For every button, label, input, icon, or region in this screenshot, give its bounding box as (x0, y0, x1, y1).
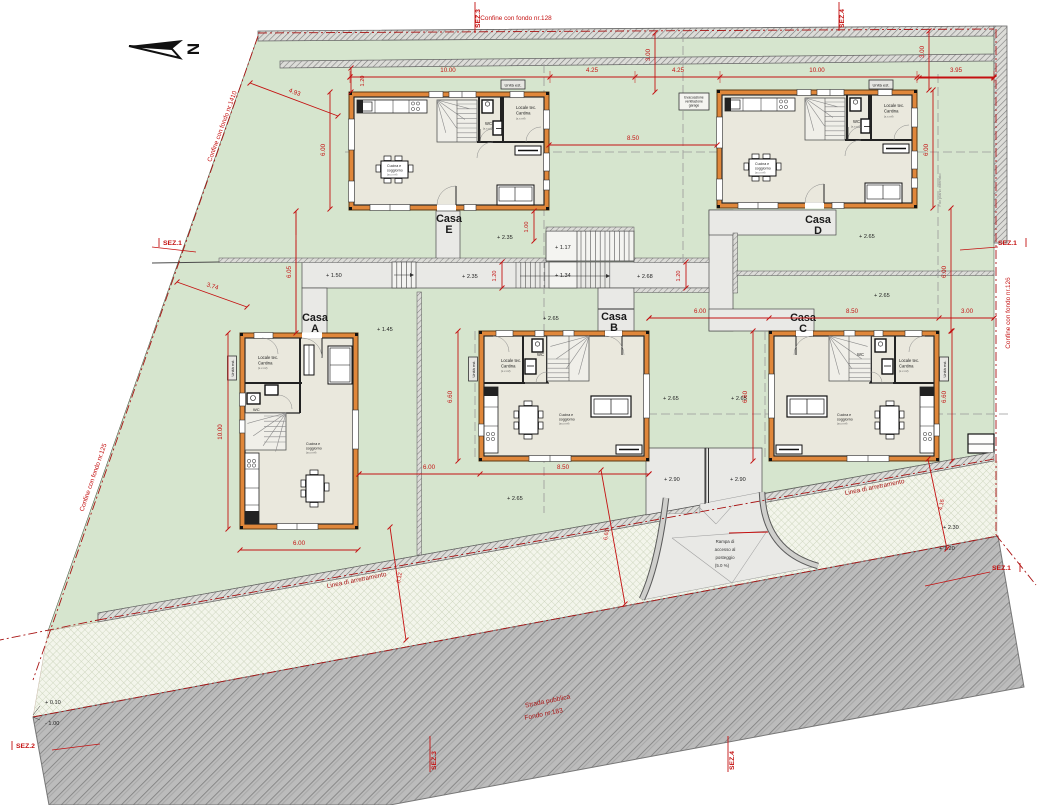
svg-text:Unità est.: Unità est. (230, 360, 235, 377)
svg-text:Cantina: Cantina (258, 361, 273, 366)
svg-text:WC: WC (853, 119, 860, 124)
svg-text:SEZ.4: SEZ.4 (839, 9, 846, 28)
svg-text:Locale tec.: Locale tec. (899, 358, 919, 363)
svg-text:6.00: 6.00 (694, 308, 707, 315)
svg-text:Cantina: Cantina (884, 109, 899, 114)
svg-text:Cantina: Cantina (516, 111, 531, 116)
svg-text:Unità est.: Unità est. (942, 361, 947, 378)
svg-text:SEZ.2: SEZ.2 (16, 743, 35, 750)
svg-text:D: D (814, 225, 822, 237)
svg-text:WC: WC (485, 121, 492, 126)
svg-text:(5.0 %): (5.0 %) (715, 563, 730, 568)
svg-text:+ 2.90: + 2.90 (664, 477, 680, 483)
svg-text:+ 1.34: + 1.34 (555, 273, 571, 279)
svg-text:SEZ.3: SEZ.3 (431, 751, 438, 770)
svg-text:10.00: 10.00 (440, 67, 456, 74)
svg-text:1.20: 1.20 (492, 271, 498, 282)
svg-text:E: E (445, 224, 452, 236)
svg-text:soggiorno: soggiorno (387, 169, 403, 173)
svg-text:3.00: 3.00 (645, 48, 652, 61)
svg-text:WC: WC (857, 352, 864, 357)
svg-text:6.00: 6.00 (320, 143, 327, 156)
svg-text:6.60: 6.60 (941, 390, 948, 403)
svg-text:- 1.00: - 1.00 (45, 721, 59, 727)
svg-text:accesso al: accesso al (715, 547, 736, 552)
svg-text:1.20: 1.20 (360, 76, 366, 87)
svg-text:Locale tec.: Locale tec. (516, 105, 536, 110)
svg-text:+ 2.35: + 2.35 (497, 235, 513, 241)
svg-text:+ 1.45: + 1.45 (377, 327, 393, 333)
svg-text:10.00: 10.00 (217, 424, 224, 440)
svg-text:3.00: 3.00 (961, 308, 974, 315)
svg-text:Confine con fondo nr.126: Confine con fondo nr.126 (1005, 277, 1012, 349)
svg-text:+ 2.35: + 2.35 (462, 274, 478, 280)
svg-text:Rampa di: Rampa di (716, 539, 735, 544)
svg-text:3.95: 3.95 (950, 67, 963, 74)
svg-text:(x.x m²): (x.x m²) (884, 115, 894, 119)
svg-text:4.25: 4.25 (672, 67, 685, 74)
svg-text:soggiorno: soggiorno (559, 418, 575, 422)
svg-text:+ 2.65: + 2.65 (543, 316, 559, 322)
svg-text:+ 2.65: + 2.65 (507, 496, 523, 502)
svg-text:SEZ.3: SEZ.3 (475, 9, 482, 28)
svg-text:Cucina e: Cucina e (559, 413, 573, 417)
svg-text:8.50: 8.50 (846, 308, 859, 315)
svg-text:Unità est.: Unità est. (505, 83, 522, 88)
svg-text:Locale tec.: Locale tec. (501, 358, 521, 363)
svg-text:Cantina: Cantina (501, 364, 516, 369)
svg-text:+ 1.17: + 1.17 (555, 245, 571, 251)
svg-text:A: A (311, 323, 319, 335)
svg-text:Locale tec.: Locale tec. (884, 103, 904, 108)
svg-text:WC: WC (537, 352, 544, 357)
svg-text:(xx.x m²): (xx.x m²) (837, 422, 848, 426)
svg-text:(xx.x m²): (xx.x m²) (559, 422, 570, 426)
svg-text:6.60: 6.60 (447, 390, 454, 403)
svg-text:Cucina e: Cucina e (837, 413, 851, 417)
svg-text:6.05: 6.05 (286, 265, 293, 278)
svg-text:+ 1.50: + 1.50 (326, 273, 342, 279)
svg-text:+ 2.65: + 2.65 (859, 234, 875, 240)
svg-text:+ 2.90: + 2.90 (730, 477, 746, 483)
svg-text:6.00: 6.00 (423, 464, 436, 471)
svg-text:+ 2.68: + 2.68 (637, 274, 653, 280)
svg-text:+ 0.10: + 0.10 (45, 700, 61, 706)
svg-text:Cucina e: Cucina e (387, 164, 401, 168)
svg-text:WC: WC (253, 407, 260, 412)
svg-text:(x.x m²): (x.x m²) (899, 369, 909, 373)
svg-text:B: B (610, 322, 618, 334)
svg-text:1.20: 1.20 (676, 271, 682, 282)
svg-text:(x.x m²): (x.x m²) (258, 366, 268, 370)
svg-text:+ 2.65: + 2.65 (663, 396, 679, 402)
svg-text:(xx.x m²): (xx.x m²) (387, 173, 398, 177)
svg-text:posteggio: posteggio (715, 555, 735, 560)
svg-text:(x.x m²): (x.x m²) (501, 369, 511, 373)
svg-text:10.00: 10.00 (809, 67, 825, 74)
svg-text:Cucina e: Cucina e (755, 162, 769, 166)
svg-text:4.25: 4.25 (586, 67, 599, 74)
svg-text:SEZ.4: SEZ.4 (729, 751, 736, 770)
svg-text:soggiorno: soggiorno (837, 418, 853, 422)
svg-text:SEZ.1: SEZ.1 (163, 240, 182, 247)
svg-text:Confine con fondo nr.128: Confine con fondo nr.128 (480, 15, 552, 22)
svg-text:6.60: 6.60 (742, 390, 749, 403)
svg-text:1.00: 1.00 (524, 222, 530, 233)
svg-text:SEZ.1: SEZ.1 (998, 240, 1017, 247)
svg-text:C: C (799, 323, 807, 335)
svg-text:3.00: 3.00 (919, 45, 926, 58)
svg-text:Unità est.: Unità est. (471, 361, 476, 378)
svg-text:N: N (184, 43, 203, 55)
svg-text:6.00: 6.00 (941, 265, 948, 278)
svg-text:(xx.x m²): (xx.x m²) (755, 171, 766, 175)
svg-text:soggiorno: soggiorno (306, 447, 322, 451)
svg-text:Cantina: Cantina (899, 364, 914, 369)
svg-text:+ 2.65: + 2.65 (874, 293, 890, 299)
svg-text:+ 2.30: + 2.30 (943, 525, 959, 531)
svg-text:8.50: 8.50 (627, 135, 640, 142)
svg-text:6.00: 6.00 (923, 143, 930, 156)
svg-text:(x.x m²): (x.x m²) (516, 117, 526, 121)
svg-text:garage: garage (689, 104, 700, 108)
svg-text:Filo piano interrato: Filo piano interrato (937, 173, 942, 207)
svg-text:Unità est.: Unità est. (873, 83, 890, 88)
svg-text:8.50: 8.50 (557, 464, 570, 471)
svg-text:(xx.x m²): (xx.x m²) (306, 451, 317, 455)
svg-text:SEZ.1: SEZ.1 (992, 565, 1011, 572)
svg-text:Locale tec.: Locale tec. (258, 355, 278, 360)
svg-text:6.00: 6.00 (293, 540, 306, 547)
svg-text:soggiorno: soggiorno (755, 167, 771, 171)
svg-text:Cucina e: Cucina e (306, 442, 320, 446)
